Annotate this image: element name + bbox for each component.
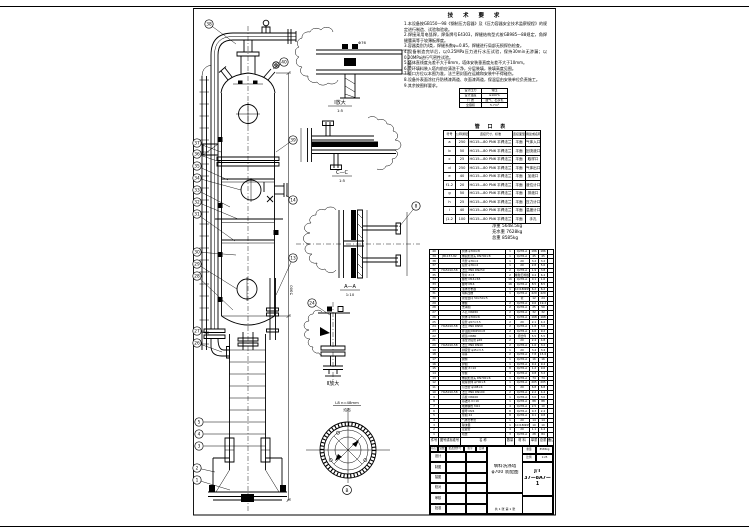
nozzle-standard: HG15—80 PN6 平焊法兰 xyxy=(469,172,513,181)
nozzle-col-use: 用途或名称 xyxy=(526,131,541,139)
overall-dimension: 5900 xyxy=(276,71,294,502)
balloon: 1 xyxy=(196,478,199,484)
nozzle-face: 平面 xyxy=(513,198,526,207)
balloon: 13 xyxy=(290,256,296,262)
balloon: 29 xyxy=(194,262,200,268)
balloon: 31 xyxy=(194,212,200,218)
signature-date xyxy=(466,462,487,472)
signature-row: 制图 xyxy=(430,462,487,472)
signature-date xyxy=(466,452,487,462)
nozzle-col-symbol: 符号 xyxy=(444,131,456,139)
signature-row: 审核 xyxy=(430,493,487,503)
signature-role: 设计 xyxy=(430,452,446,462)
balloon: 26 xyxy=(194,341,200,347)
title-block: 标记 处数 更改文件号 签字 日期 设计 制图 描图 xyxy=(429,445,554,515)
nozzle-standard: HG15—80 PN6 平焊法兰 xyxy=(469,138,513,147)
nozzle-use: 加液口 xyxy=(526,172,541,181)
sheet-count: 共 1 张 第 1 张 xyxy=(487,493,523,514)
nozzle-row: g 50 HG15—80 PN6 平焊法兰 平面 排液口 xyxy=(444,189,541,198)
parameter-row: 全容积 5.7m³ xyxy=(460,103,508,108)
drawing-sheet: 5900 38 37 36 35 34 33 32 31 30 29 28 27… xyxy=(0,0,749,530)
nozzle-face: 平面 xyxy=(513,181,526,190)
signature-date xyxy=(466,493,487,503)
skirt-support xyxy=(204,334,270,470)
nozzle-face: 平面 xyxy=(513,164,526,173)
notes-title: 技 术 要 求 xyxy=(404,11,547,19)
scale-value: 1:25 xyxy=(536,454,553,462)
signature-date xyxy=(466,483,487,493)
bom-col-unitweight: 单重 xyxy=(530,437,539,445)
nozzle-use: 压力计口 xyxy=(526,198,541,207)
signature-role: 制图 xyxy=(430,462,446,472)
base-ring xyxy=(208,458,287,502)
weight-line: 总重 8585kg xyxy=(492,236,548,242)
balloon: 8 xyxy=(415,204,418,210)
nozzle-dn: 20 xyxy=(456,181,469,190)
balloon: 5 xyxy=(198,420,201,426)
detail-cc-scale: 1:5 xyxy=(339,178,346,183)
part-balloons: 38 37 36 35 34 33 32 31 30 29 28 27 26 5… xyxy=(193,20,297,490)
nozzle-face: 平面 xyxy=(513,206,526,215)
bom-col-material: 材 料 xyxy=(515,437,530,445)
balloon: 32 xyxy=(194,200,200,206)
nozzle-use: 排液口 xyxy=(526,189,541,198)
technical-notes: 技 术 要 求 1.本设备按GB150—98《钢制压力容器》及《压力容器安全技术… xyxy=(404,11,547,88)
nozzle-use: 气体入口 xyxy=(526,138,541,147)
weight-notes: 净重 5648.5kg充水重 7628kg总重 8585kg xyxy=(492,224,548,243)
nozzle-standard: HG15—80 PN6 平焊法兰 xyxy=(469,147,513,156)
signature-name xyxy=(446,483,466,493)
bill-of-materials: 40 筒体 φ700×8 1 Q235-A 186 186 39 JB1157-… xyxy=(429,249,554,446)
nozzle-symbol: j1-2 xyxy=(444,215,456,224)
balloon: 4 xyxy=(198,432,201,438)
balloon: 35 xyxy=(194,164,200,170)
title-block-bottom-cell xyxy=(522,496,553,514)
signature-grid: 设计 制图 描图 校对 xyxy=(430,452,487,514)
nozzle-row: c 25 HG15—80 PN6 平焊法兰 平面 取样口 xyxy=(444,155,541,164)
nozzle-symbol: a xyxy=(444,138,456,147)
nozzle-symbol: e xyxy=(444,172,456,181)
notes-list: 1.本设备按GB150—98《钢制压力容器》及《压力容器安全技术监察规程》的规定… xyxy=(404,21,547,88)
signature-row: 设计 xyxy=(430,452,487,462)
view-b-balloon: B xyxy=(346,488,349,494)
signature-name xyxy=(446,493,466,503)
nozzle-symbol: b xyxy=(444,147,456,156)
balloon: 38 xyxy=(206,22,212,28)
view-b-bolt-circle: L8 n=48mm 均布 B xyxy=(306,400,390,495)
detail1-scale: 1:5 xyxy=(337,108,344,113)
nozzle-face: 平面 xyxy=(513,172,526,181)
balloon: 37 xyxy=(194,141,200,147)
note-line: 1.本设备按GB150—98《钢制压力容器》及《压力容器安全技术监察规程》的规定… xyxy=(404,21,547,32)
nozzle-dn: 25 xyxy=(456,198,469,207)
nozzle-col-standard: 连接尺寸、标准 xyxy=(469,131,513,139)
detail-cc-label: C—C xyxy=(336,170,348,176)
column-shell xyxy=(203,93,287,325)
nozzle-symbol: g xyxy=(444,189,456,198)
balloon: 27 xyxy=(194,329,200,335)
signature-date xyxy=(466,504,487,514)
nozzle-standard: HG15—80 PN6 平焊法兰 xyxy=(469,206,513,215)
nozzle-face: 平面 xyxy=(513,138,526,147)
bolt-note-line1: L8 n=48mm xyxy=(335,400,359,405)
signature-row: 批准 xyxy=(430,504,487,514)
detail1-dim: Φ76 xyxy=(358,40,366,45)
bom-col-name: 名 称 xyxy=(461,437,506,445)
drawing-number: 37—8A7—1 xyxy=(523,476,552,489)
nozzle-table-title: 管 口 表 xyxy=(443,123,540,130)
signature-date xyxy=(466,473,487,483)
nozzle-row: d 250 HG15—80 PN6 平焊法兰 平面 气体出口 xyxy=(444,164,541,173)
cad-linework: 5900 38 37 36 35 34 33 32 31 30 29 28 27… xyxy=(0,0,749,530)
balloon: 34 xyxy=(194,176,200,182)
overall-height-dim: 5900 xyxy=(289,285,294,295)
signature-role: 审核 xyxy=(430,493,446,503)
nozzle-col-dn: 公称通径 xyxy=(456,131,469,139)
balloon: 14 xyxy=(290,198,296,204)
nozzle-row: i 40 HG15—80 PN6 平焊法兰 平面 温度计口 xyxy=(444,206,541,215)
balloon: 24 xyxy=(309,301,315,307)
parameter-value: 5.7m³ xyxy=(482,103,508,108)
note-line: 5.塔体直线度允差不大于8mm，塔体安装垂直度允差不大于10mm。 xyxy=(404,60,547,66)
signature-role: 校对 xyxy=(430,483,446,493)
nozzle-use: 温度计口 xyxy=(526,206,541,215)
nozzle-use: 回流液口 xyxy=(526,147,541,156)
nozzle-face: 平面 xyxy=(513,155,526,164)
nozzle-standard: HG15—80 PN6 平焊法兰 xyxy=(469,215,513,224)
parameter-table: 设计压力 常压 设计温度 ≤100℃ 介 质 废气、石灰乳 全容积 5.7m³ xyxy=(459,88,508,108)
nozzle-row: e 40 HG15—80 PN6 平焊法兰 平面 加液口 xyxy=(444,172,541,181)
signature-row: 校对 xyxy=(430,483,487,493)
bom-col-itemno: 件号 xyxy=(430,437,439,445)
bom-col-totalweight: 总重 xyxy=(539,437,548,445)
nozzle-dn: 250 xyxy=(456,164,469,173)
nozzle-dn: 50 xyxy=(456,147,469,156)
nozzle-dn: 250 xyxy=(456,138,469,147)
nozzle-dn: 40 xyxy=(456,206,469,215)
nozzle-symbol: h xyxy=(444,198,456,207)
nozzle-header-row: 符号 公称通径 连接尺寸、标准 连接面型式 用途或名称 xyxy=(444,131,541,139)
bolt-note-line2: 均布 xyxy=(343,408,351,413)
nozzle-dn: 40 xyxy=(456,172,469,181)
nozzle-face: 平面 xyxy=(513,215,526,224)
scale-label: 比例 xyxy=(522,454,536,462)
detail-view-aa: A—A 1:10 8 xyxy=(296,202,420,297)
balloon: 36 xyxy=(194,152,200,158)
nozzle-dn: 50 xyxy=(456,189,469,198)
nozzle-row: a 250 HG15—80 PN6 平焊法兰 平面 气体入口 xyxy=(444,138,541,147)
balloon: 30 xyxy=(194,250,200,256)
nozzle-row: j1-2 100 HG15—80 PN6 平焊法兰 平面 手孔 xyxy=(444,215,541,224)
nozzle-standard: HG15—80 PN6 平焊法兰 xyxy=(469,164,513,173)
bom-col-remark: 备注 xyxy=(548,437,554,445)
signature-role: 批准 xyxy=(430,504,446,514)
nozzle-row: f1-2 20 HG15—80 PN6 平焊法兰 平面 液位计口 xyxy=(444,181,541,190)
nozzle-standard: HG15—80 PN6 平焊法兰 xyxy=(469,189,513,198)
detail-aa-label: A—A xyxy=(344,284,356,290)
nozzle-symbol: i xyxy=(444,206,456,215)
note-line: 4.设备制造完毕后，以0.25MPa压力进行水压试验，保持30min无渗漏；以0… xyxy=(404,49,547,60)
signature-role: 描图 xyxy=(430,473,446,483)
dome-head xyxy=(219,62,279,93)
gooseneck-pipe xyxy=(204,20,296,358)
detail2-label: Ⅱ放大 xyxy=(327,380,339,387)
nozzle-col-face: 连接面型式 xyxy=(513,131,526,139)
equipment-name-line2: φ700 装配图 xyxy=(491,470,518,476)
nozzle-face: 平面 xyxy=(513,147,526,156)
parameter-name: 全容积 xyxy=(460,103,482,108)
note-line: 2.焊接采用电弧焊，焊条牌号E4303，焊缝结构型式按GB985—88规定，角焊… xyxy=(404,32,547,43)
weight-value: 8585kg xyxy=(536,446,553,454)
signature-name xyxy=(446,473,466,483)
signature-row: 描图 xyxy=(430,473,487,483)
equipment-name-box: 填料洗涤塔 φ700 装配图 xyxy=(487,446,523,493)
balloon: 2 xyxy=(196,466,199,472)
ladder xyxy=(200,65,212,350)
column-elevation: 5900 xyxy=(200,20,297,512)
signature-name xyxy=(446,504,466,514)
balloon: 28 xyxy=(194,274,200,280)
nozzle-symbol: c xyxy=(444,155,456,164)
nozzle-row: b 50 HG15—80 PN6 平焊法兰 平面 回流液口 xyxy=(444,147,541,156)
drawing-number-box: J/T 37—8A7—1 xyxy=(522,462,553,496)
signature-name xyxy=(446,452,466,462)
weight-label: 重量 xyxy=(522,446,536,454)
bom-col-dwgno: 图号或标准号 xyxy=(439,437,461,445)
nozzle-use: 手孔 xyxy=(526,215,541,224)
detail-view-2: 24 Ⅱ放大 xyxy=(304,299,350,387)
nozzle-use: 取样口 xyxy=(526,155,541,164)
nozzle-symbol: d xyxy=(444,164,456,173)
note-line: 8.设备外表面涂红丹防锈漆两道、灰面漆两道，保温层由安装单位负责施工。 xyxy=(404,77,547,83)
balloon: 3 xyxy=(198,444,201,450)
nozzle-face: 平面 xyxy=(513,189,526,198)
detail1-label: Ⅰ放大 xyxy=(334,99,345,106)
balloon: 40 xyxy=(281,60,287,66)
bom-col-qty: 数量 xyxy=(506,437,515,445)
detail-view-1: Φ76 450 Ⅰ放大 1:5 xyxy=(295,27,412,113)
detail-view-cc: C—C 1:5 xyxy=(301,117,401,183)
balloon: 33 xyxy=(194,188,200,194)
nozzle-table: 符号 公称通径 连接尺寸、标准 连接面型式 用途或名称 a 250 HG15—8… xyxy=(443,130,541,224)
detail-aa-scale: 1:10 xyxy=(346,292,355,297)
nozzle-standard: HG15—80 PN6 平焊法兰 xyxy=(469,181,513,190)
nozzle-dn: 25 xyxy=(456,155,469,164)
signature-name xyxy=(446,462,466,472)
balloon: 39 xyxy=(290,138,296,144)
nozzle-standard: HG15—80 PN6 平焊法兰 xyxy=(469,155,513,164)
nozzle-symbol: f1-2 xyxy=(444,181,456,190)
nozzle-row: h 25 HG15—80 PN6 平焊法兰 平面 压力计口 xyxy=(444,198,541,207)
nozzle-dn: 100 xyxy=(456,215,469,224)
bom-header-row: 件号 图号或标准号 名 称 数量 材 料 单重 总重 备注 xyxy=(430,437,554,445)
nozzle-standard: HG15—80 PN6 平焊法兰 xyxy=(469,198,513,207)
side-downpipe xyxy=(267,278,279,340)
nozzle-use: 气体出口 xyxy=(526,164,541,173)
nozzle-use: 液位计口 xyxy=(526,181,541,190)
